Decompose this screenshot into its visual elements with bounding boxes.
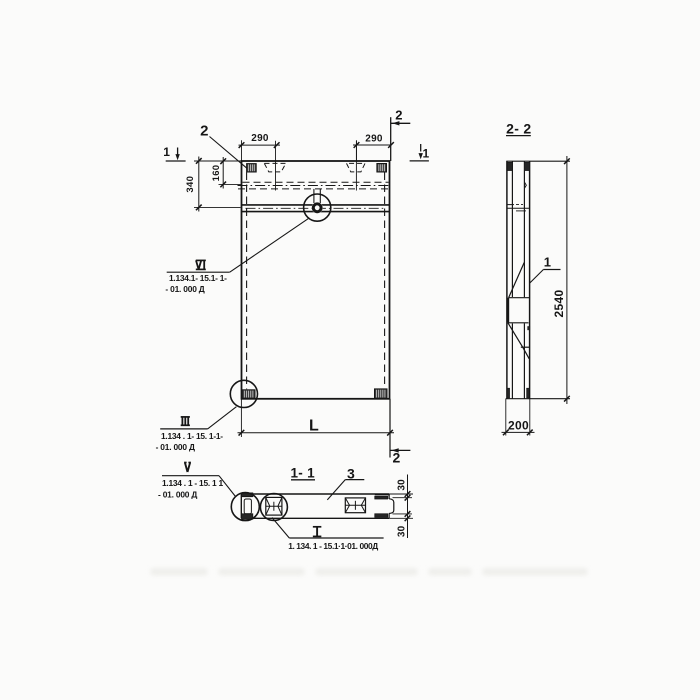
svg-text:- 01. 000 Д: - 01. 000 Д	[165, 284, 204, 294]
svg-text:30: 30	[397, 525, 408, 537]
svg-text:1.134 . 1- 15. 1-1-: 1.134 . 1- 15. 1-1-	[161, 431, 223, 441]
svg-text:2540: 2540	[552, 290, 566, 318]
svg-text:2: 2	[395, 108, 403, 123]
svg-text:340: 340	[185, 176, 196, 193]
svg-text:1: 1	[544, 255, 552, 270]
svg-text:L: L	[309, 418, 319, 435]
svg-text:200: 200	[508, 418, 529, 432]
svg-text:160: 160	[211, 165, 222, 182]
svg-text:1.134 . 1 - 15. 1 1: 1.134 . 1 - 15. 1 1	[162, 478, 223, 488]
svg-text:30: 30	[397, 479, 408, 491]
svg-text:2: 2	[392, 449, 400, 465]
svg-text:2: 2	[200, 123, 209, 140]
svg-text:- 01. 000 Д: - 01. 000 Д	[158, 489, 197, 499]
svg-text:1.134.1- 15.1- 1-: 1.134.1- 15.1- 1-	[169, 273, 227, 283]
svg-text:1: 1	[163, 145, 170, 159]
svg-text:- 01. 000 Д: - 01. 000 Д	[156, 442, 195, 452]
svg-text:1. 134. 1 - 15.1·1·01. 000Д: 1. 134. 1 - 15.1·1·01. 000Д	[288, 541, 378, 551]
svg-text:1- 1: 1- 1	[290, 465, 315, 480]
svg-text:2- 2: 2- 2	[506, 121, 531, 137]
svg-text:290: 290	[251, 133, 269, 144]
svg-text:1: 1	[423, 147, 430, 161]
svg-text:290: 290	[365, 134, 383, 145]
